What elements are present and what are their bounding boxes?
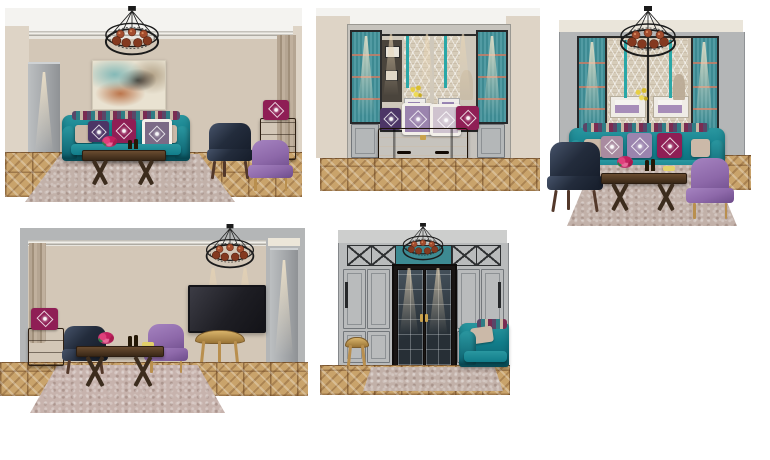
panel-window-wall	[553, 10, 752, 228]
navy-leather-armchair	[207, 123, 253, 179]
plum-pillow	[380, 108, 401, 130]
magenta-pillow	[456, 106, 479, 130]
chair-seat	[686, 188, 734, 203]
parquet-floor	[320, 158, 540, 191]
x-pattern-panel	[476, 245, 501, 266]
x-pattern-panel	[347, 245, 372, 266]
coffee-table	[76, 336, 162, 392]
spotlight-beam	[274, 260, 294, 356]
door-handle	[425, 314, 428, 322]
chair-leg	[592, 190, 598, 212]
wall-surround-left	[20, 228, 28, 363]
bottle	[645, 160, 649, 171]
sofa-seat	[464, 351, 507, 362]
flower-bouquet	[617, 156, 633, 168]
chair-seat	[547, 176, 603, 190]
display-cabinet-right	[689, 36, 719, 132]
chair-leg	[693, 203, 696, 219]
purple-slipper-chair	[686, 158, 734, 222]
pilaster	[28, 62, 60, 157]
magenta-pillow-on-trunk	[31, 308, 58, 330]
chandelier-icon	[102, 6, 162, 64]
lamp-silhouette	[673, 74, 685, 100]
shade-image	[658, 100, 682, 113]
bottle	[128, 336, 132, 346]
door-handle	[420, 314, 423, 322]
panel-tv-wall	[20, 228, 305, 418]
gold-console-table	[195, 330, 243, 366]
mauve-medallion-pillow	[601, 136, 623, 158]
teal-tassel	[444, 36, 447, 88]
chair-leg	[254, 178, 257, 191]
spotlight-beam	[34, 72, 54, 152]
coffee-table	[601, 164, 685, 214]
display-cabinet-left	[350, 30, 382, 124]
shag-rug	[363, 367, 503, 391]
wall-left	[316, 16, 350, 158]
panel-wardrobe-doors	[337, 227, 509, 399]
abstract-painting	[92, 60, 166, 110]
bottle	[134, 335, 138, 346]
wall-tv	[188, 285, 266, 333]
navy-leather-armchair	[547, 142, 603, 214]
magenta-pillow-on-chest	[263, 100, 289, 120]
display-cabinet-right	[476, 30, 508, 124]
x-pattern-panel	[371, 245, 396, 266]
wardrobe-handle	[498, 282, 501, 308]
wood-trunk	[28, 328, 64, 366]
bottle	[134, 139, 138, 149]
purple-slipper-chair	[248, 140, 293, 192]
stool-leg	[347, 345, 352, 366]
x-pattern-panel	[452, 245, 477, 266]
cabinet-lower-door-right	[477, 124, 505, 158]
flower-bouquet	[102, 136, 117, 147]
wardrobe-handle	[345, 282, 348, 308]
wardrobe-door-panel	[367, 269, 390, 329]
side-wall-left	[5, 26, 29, 155]
yellow-flowers	[633, 86, 650, 104]
beige-pillow	[691, 139, 710, 157]
chair-leg	[66, 360, 71, 374]
panel-sofa-wall	[5, 8, 302, 210]
striped-throw	[583, 123, 709, 132]
chair-leg	[211, 161, 216, 179]
bottle	[651, 159, 655, 171]
chandelier-icon	[203, 224, 257, 276]
chair-leg	[551, 190, 557, 212]
cabinet-lower-door-left	[351, 124, 379, 158]
cream-strip	[268, 238, 300, 246]
coffee-table	[82, 142, 164, 187]
trunk-handle	[397, 151, 411, 154]
panel-cabinet-mirror-wall	[316, 8, 540, 192]
gold-stool	[345, 337, 367, 367]
chandelier-icon	[617, 6, 679, 66]
elevation-board	[0, 0, 770, 460]
cabinet-light-beam	[582, 42, 602, 124]
wall-right	[506, 16, 540, 158]
glazed-double-doors	[392, 264, 457, 371]
wardrobe-door-panel	[367, 331, 390, 363]
chair-leg	[725, 203, 728, 219]
trunk-lock	[420, 135, 426, 140]
pilaster	[270, 248, 298, 364]
chair-seat	[248, 165, 293, 178]
butter-dish	[663, 166, 675, 171]
display-cabinet-left	[577, 36, 607, 132]
flower-bouquet	[98, 332, 114, 344]
chair-leg	[223, 161, 226, 177]
teal-tassel	[406, 36, 409, 88]
cabinet-light-beam	[694, 42, 714, 124]
teal-sofa-corner	[459, 323, 509, 367]
trunk-handle	[435, 151, 449, 154]
magenta-medallion-pillow	[657, 133, 682, 158]
bottle	[128, 140, 132, 149]
lavender-medallion-pillow	[627, 133, 652, 158]
chandelier-icon	[401, 223, 445, 267]
chair-leg	[285, 178, 288, 191]
chair-leg	[567, 190, 570, 210]
stool-leg	[360, 345, 365, 366]
chair-leg	[180, 361, 183, 373]
chair-seat	[207, 149, 253, 161]
